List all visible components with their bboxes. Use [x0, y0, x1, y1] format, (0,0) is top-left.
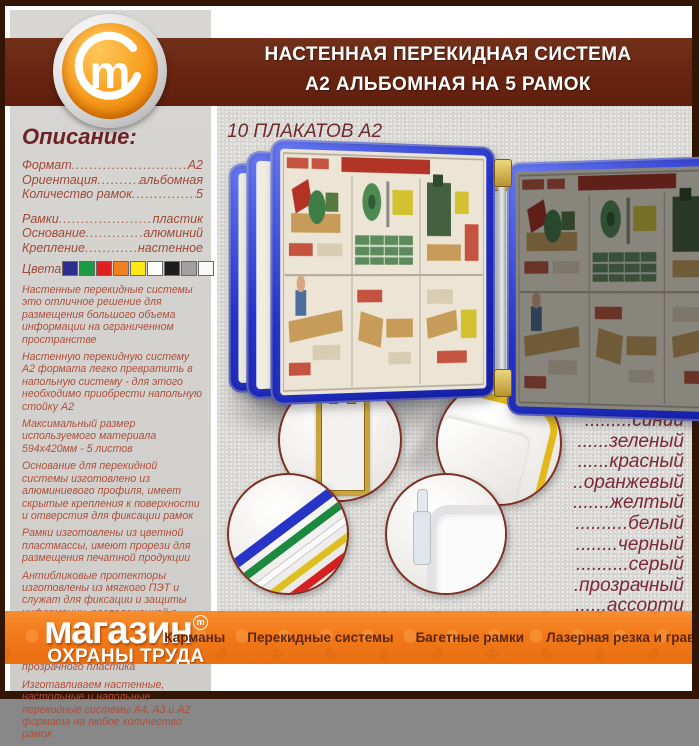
page-title: НАСТЕННАЯ ПЕРЕКИДНАЯ СИСТЕМА А2 АЛЬБОМНА…	[210, 44, 686, 96]
color-option: .прозрачный	[534, 576, 684, 597]
color-swatch-gray	[181, 261, 197, 276]
spec-row-mounting: Крепление настенное	[22, 241, 203, 256]
spec-value: 5	[196, 187, 203, 202]
menu-item-flip-systems[interactable]: Перекидные системы	[236, 630, 404, 645]
color-swatch-black	[164, 261, 180, 276]
color-swatch-blue	[62, 261, 78, 276]
spec-value: алюминий	[143, 226, 203, 241]
menu-item-laser-cutting[interactable]: Лазерная резка и гравировка	[535, 630, 692, 645]
product-card-page: НАСТЕННАЯ ПЕРЕКИДНАЯ СИСТЕМА А2 АЛЬБОМНА…	[0, 0, 699, 699]
description-paragraph: Настенную перекидную систему А2 формата …	[22, 351, 203, 413]
hinge-bottom	[494, 369, 512, 397]
description-paragraph: Рамки изготовлены из цветной пластмассы,…	[22, 527, 203, 564]
spec-label: Количество рамок	[22, 187, 132, 202]
store-logo-subtitle: ОХРАНЫ ТРУДА	[31, 649, 221, 664]
spec-row-frame-count: Количество рамок 5	[22, 187, 203, 202]
main-product-area: 10 ПЛАКАТОВ А2	[217, 106, 692, 611]
color-option: ........черный	[534, 535, 684, 556]
color-swatch-clear	[198, 261, 214, 276]
dotted-leader	[72, 158, 188, 173]
menu-item-baguette-frames[interactable]: Багетные рамки	[405, 630, 536, 645]
color-swatch-green	[79, 261, 95, 276]
color-swatch-orange	[113, 261, 129, 276]
product-photo	[221, 143, 693, 419]
spec-value: альбомная	[140, 173, 204, 188]
dotted-leader	[132, 187, 196, 202]
description-paragraphs: Настенные перекидные системы это отлично…	[22, 284, 203, 741]
description-paragraph: Максимальный размер используемого матери…	[22, 418, 203, 455]
color-swatch-red	[96, 261, 112, 276]
flip-frame-open-left	[270, 139, 495, 406]
spec-row-orientation: Ориентация альбомная	[22, 173, 203, 188]
spec-label: Рамки	[22, 212, 59, 227]
description-paragraph: Настенные перекидные системы это отлично…	[22, 284, 203, 346]
spec-label: Основание	[22, 226, 86, 241]
clear-holder-clip	[413, 511, 431, 565]
detail-circle-holder-clip	[385, 473, 507, 595]
color-swatch-row: Цвета	[22, 261, 203, 276]
trademark-m-icon: m	[193, 615, 208, 630]
page-title-line2: А2 АЛЬБОМНАЯ НА 5 РАМОК	[210, 74, 686, 96]
spec-row-base: Основание алюминий	[22, 226, 203, 241]
spec-label: Ориентация	[22, 173, 97, 188]
color-option: .......желтый	[534, 493, 684, 514]
spec-row-format: Формат А2	[22, 158, 203, 173]
dotted-leader	[85, 241, 138, 256]
spec-row-frames: Рамки пластик	[22, 212, 203, 227]
description-paragraph: Основание для перекидной системы изготов…	[22, 460, 203, 522]
spec-label: Формат	[22, 158, 72, 173]
spec-value: А2	[188, 158, 203, 173]
description-paragraph: Изготавливаем настенные, настольные и на…	[22, 679, 203, 741]
hinge-rail	[498, 177, 506, 373]
color-option: ..оранжевый	[534, 473, 684, 494]
color-option: ..........серый	[534, 555, 684, 576]
dotted-leader	[97, 173, 139, 188]
dotted-leader	[86, 226, 144, 241]
page-title-line1: НАСТЕННАЯ ПЕРЕКИДНАЯ СИСТЕМА	[210, 44, 686, 66]
footer-menu: Карманы Перекидные системы Багетные рамк…	[223, 611, 684, 664]
colored-frame-edges	[227, 473, 349, 595]
white-frame-corner	[427, 505, 507, 595]
detail-circle-colored-frames	[227, 473, 349, 595]
svg-text:m: m	[90, 46, 131, 98]
spec-label: Крепление	[22, 241, 85, 256]
flip-frame-open-right	[507, 155, 699, 423]
spec-value: пластик	[153, 212, 203, 227]
footer-band: магазинm ОХРАНЫ ТРУДА Карманы Перекидные…	[5, 611, 692, 664]
poster-woodworking-left	[280, 149, 486, 396]
spec-value: настенное	[138, 241, 203, 256]
menu-item-pockets[interactable]: Карманы	[153, 630, 236, 645]
color-option: ..........белый	[534, 514, 684, 535]
color-swatch-white	[147, 261, 163, 276]
color-swatch-yellow	[130, 261, 146, 276]
poster-woodworking-right	[516, 165, 699, 413]
company-logo: m	[53, 14, 167, 128]
hinge-top	[494, 159, 512, 187]
logo-m-icon: m	[53, 14, 167, 128]
colors-label: Цвета	[22, 262, 61, 276]
dotted-leader	[59, 212, 153, 227]
